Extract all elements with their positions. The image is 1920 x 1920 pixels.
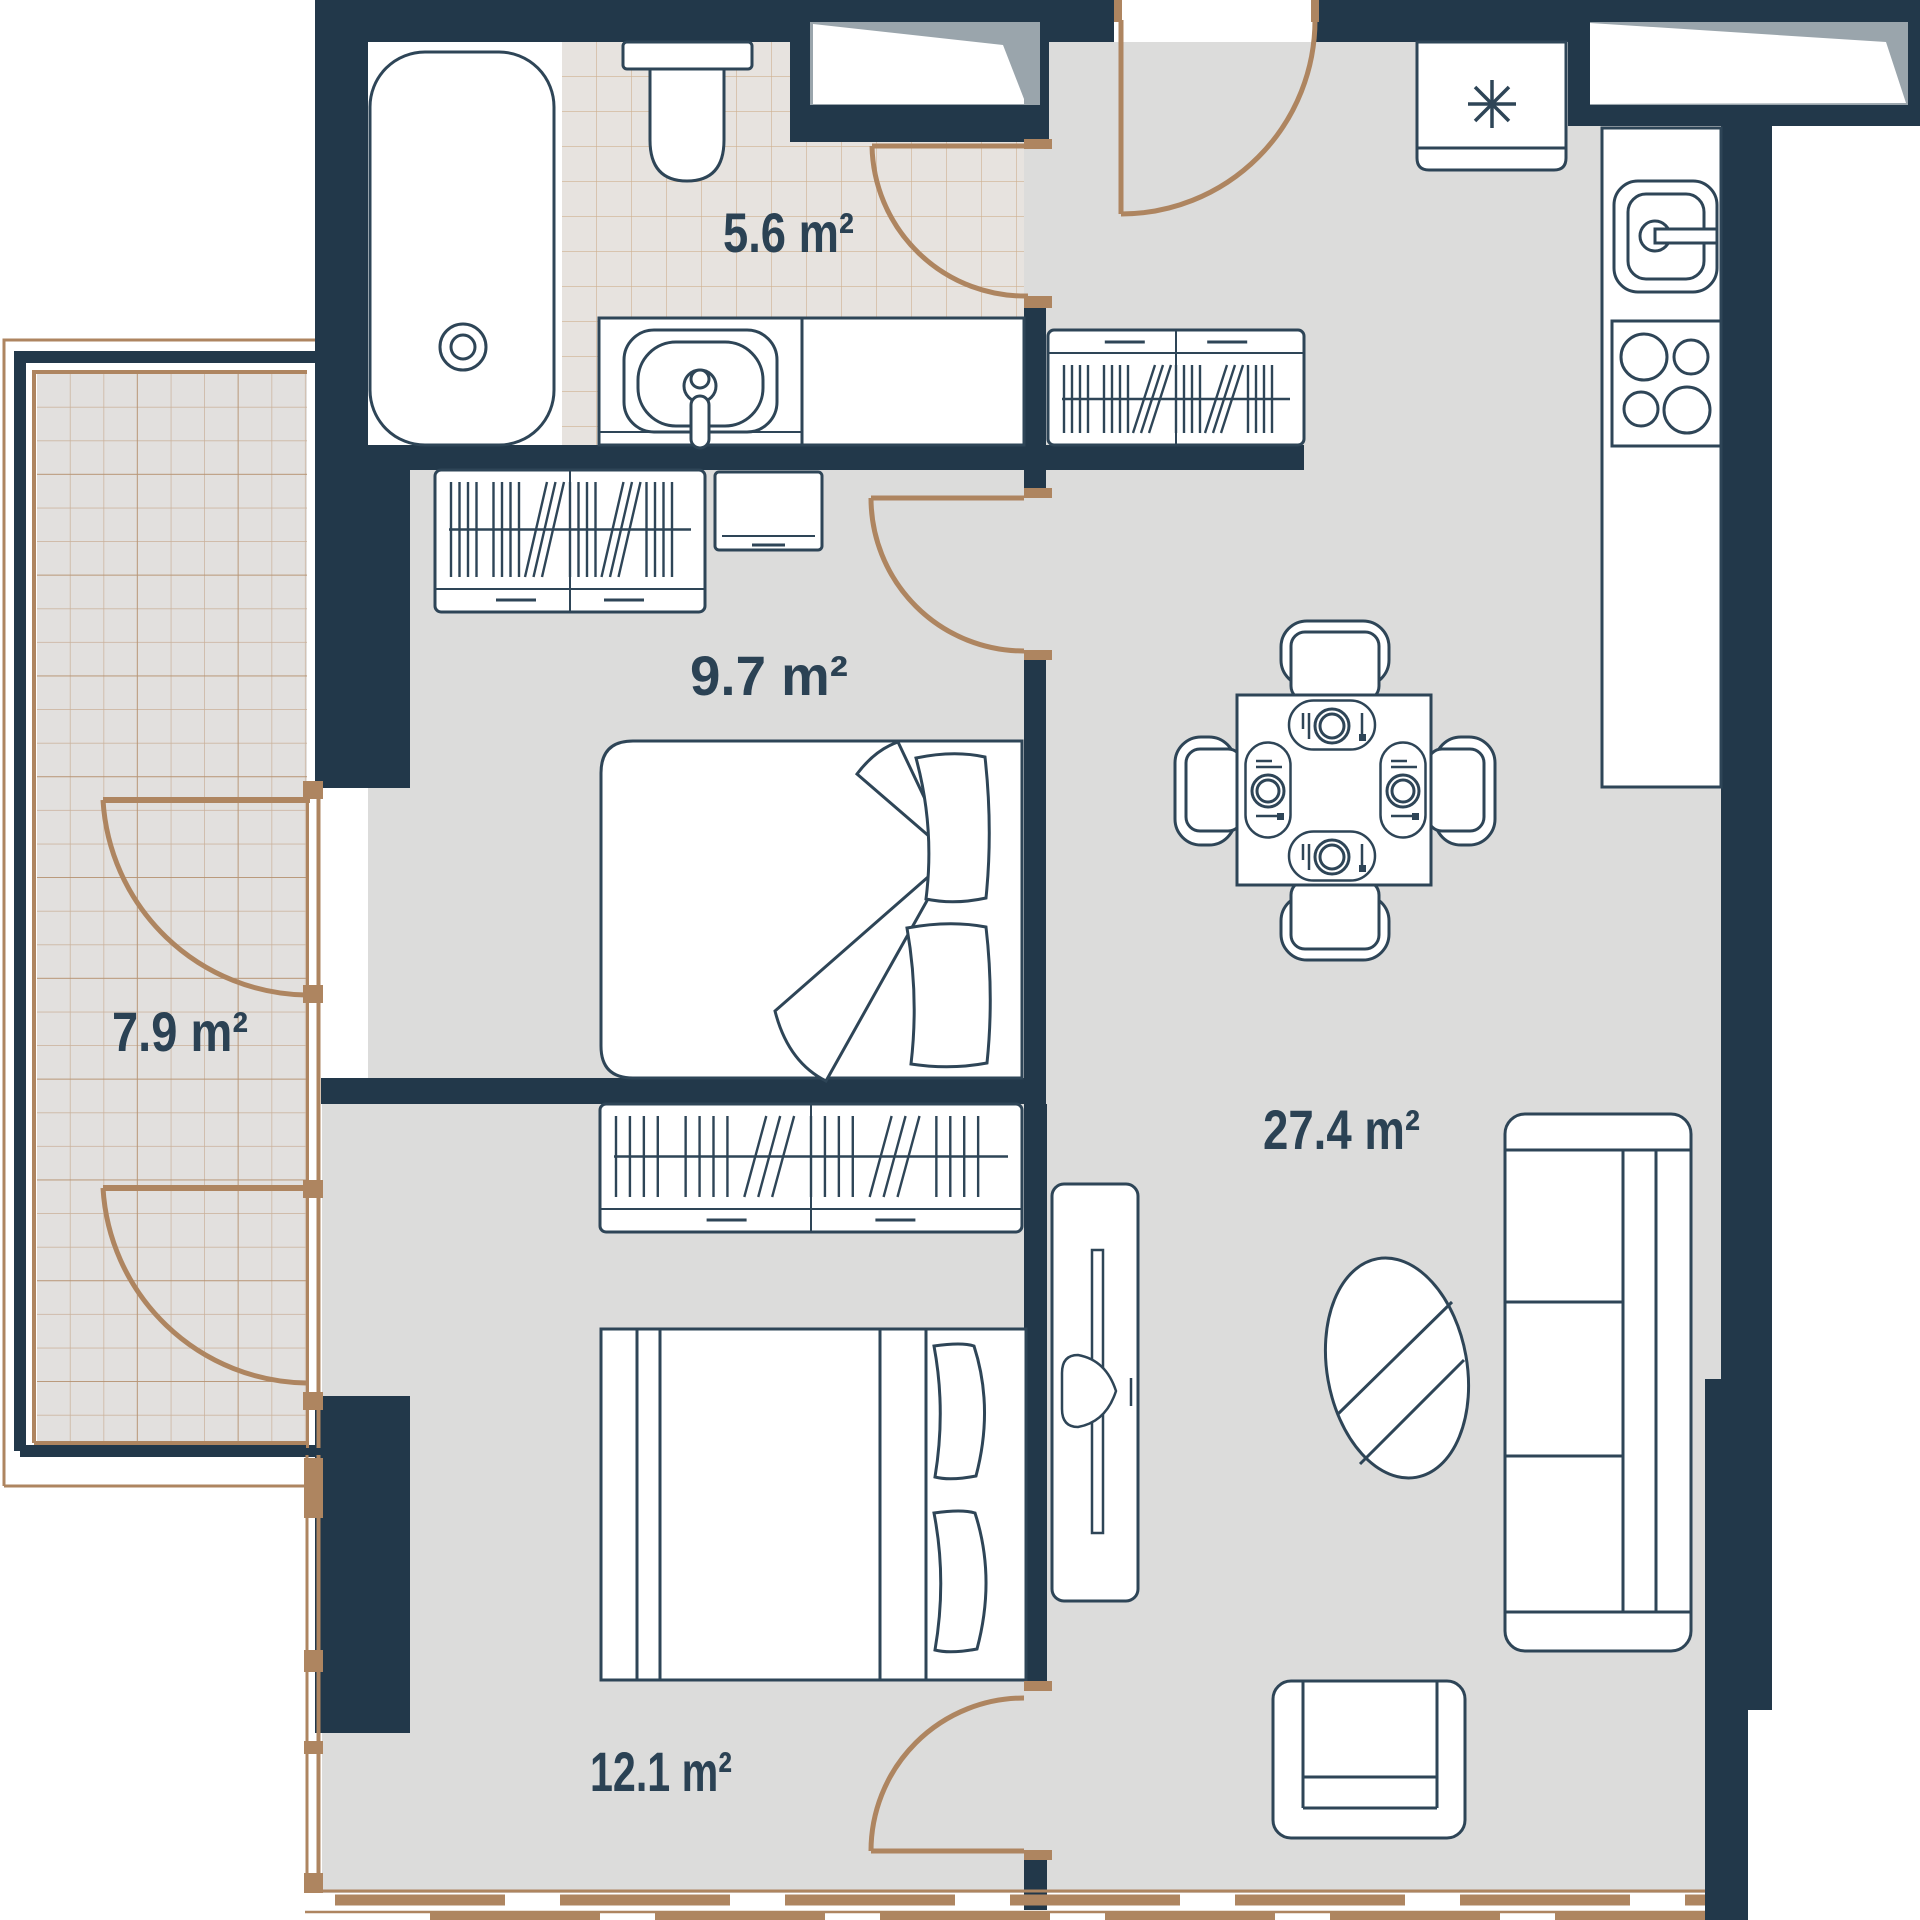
svg-text:9.7 m²: 9.7 m²	[690, 644, 848, 707]
svg-text:12.1 m²: 12.1 m²	[590, 1740, 732, 1803]
svg-text:27.4 m²: 27.4 m²	[1263, 1098, 1420, 1161]
svg-text:7.9 m²: 7.9 m²	[112, 1000, 248, 1063]
svg-text:5.6 m²: 5.6 m²	[723, 201, 854, 264]
